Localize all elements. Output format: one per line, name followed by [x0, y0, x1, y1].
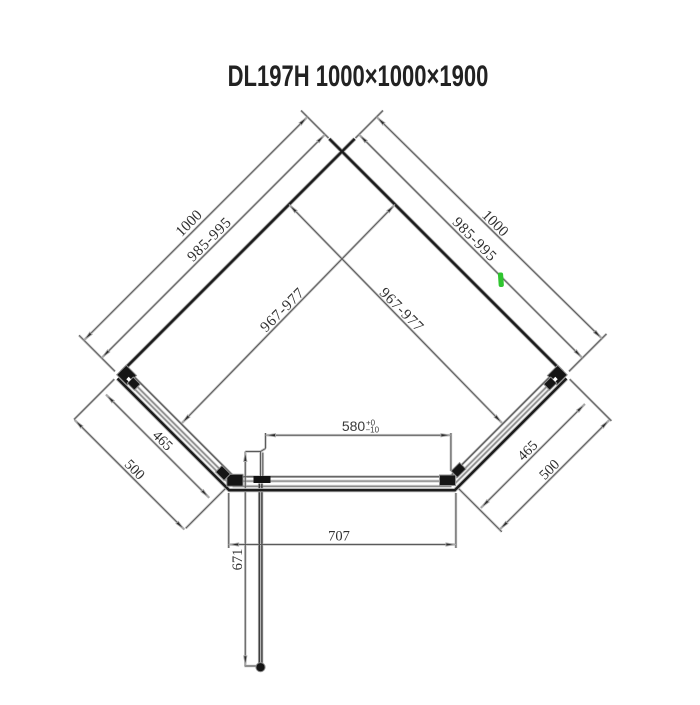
svg-text:−10: −10 — [366, 426, 380, 435]
svg-text:707: 707 — [328, 529, 350, 545]
svg-text:580: 580 — [342, 418, 366, 434]
svg-text:671: 671 — [230, 549, 246, 571]
